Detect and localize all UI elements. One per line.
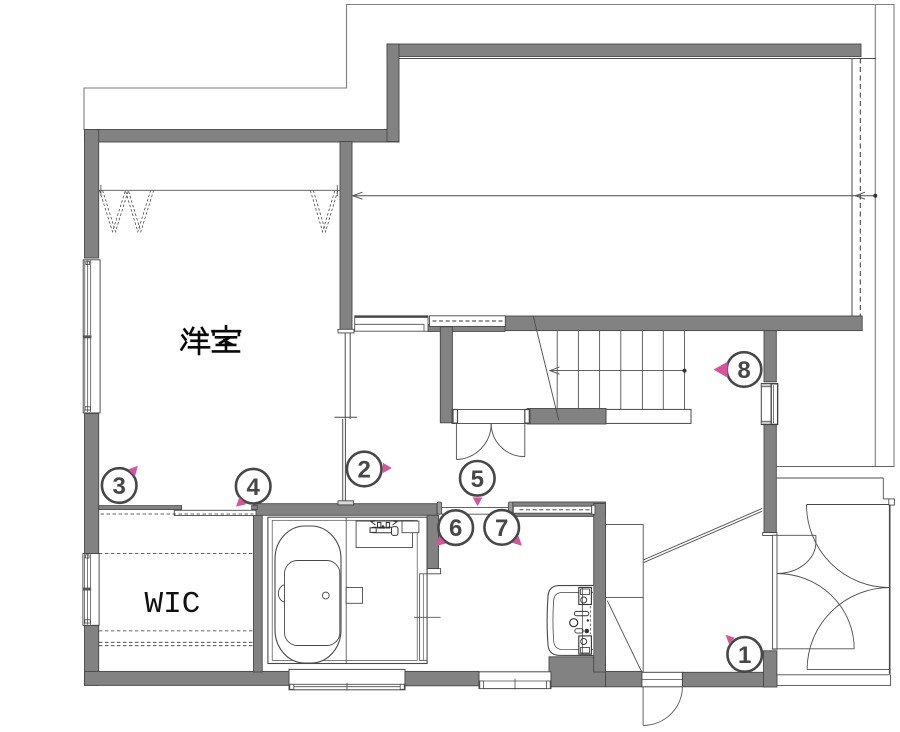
svg-text:8: 8 — [737, 357, 750, 384]
svg-text:3: 3 — [113, 473, 126, 500]
svg-text:6: 6 — [449, 515, 462, 542]
svg-text:WIC: WIC — [145, 587, 201, 622]
svg-text:1: 1 — [738, 642, 751, 669]
svg-text:5: 5 — [471, 466, 484, 493]
svg-text:7: 7 — [495, 515, 508, 542]
svg-text:4: 4 — [247, 474, 261, 501]
svg-text:2: 2 — [358, 457, 371, 484]
